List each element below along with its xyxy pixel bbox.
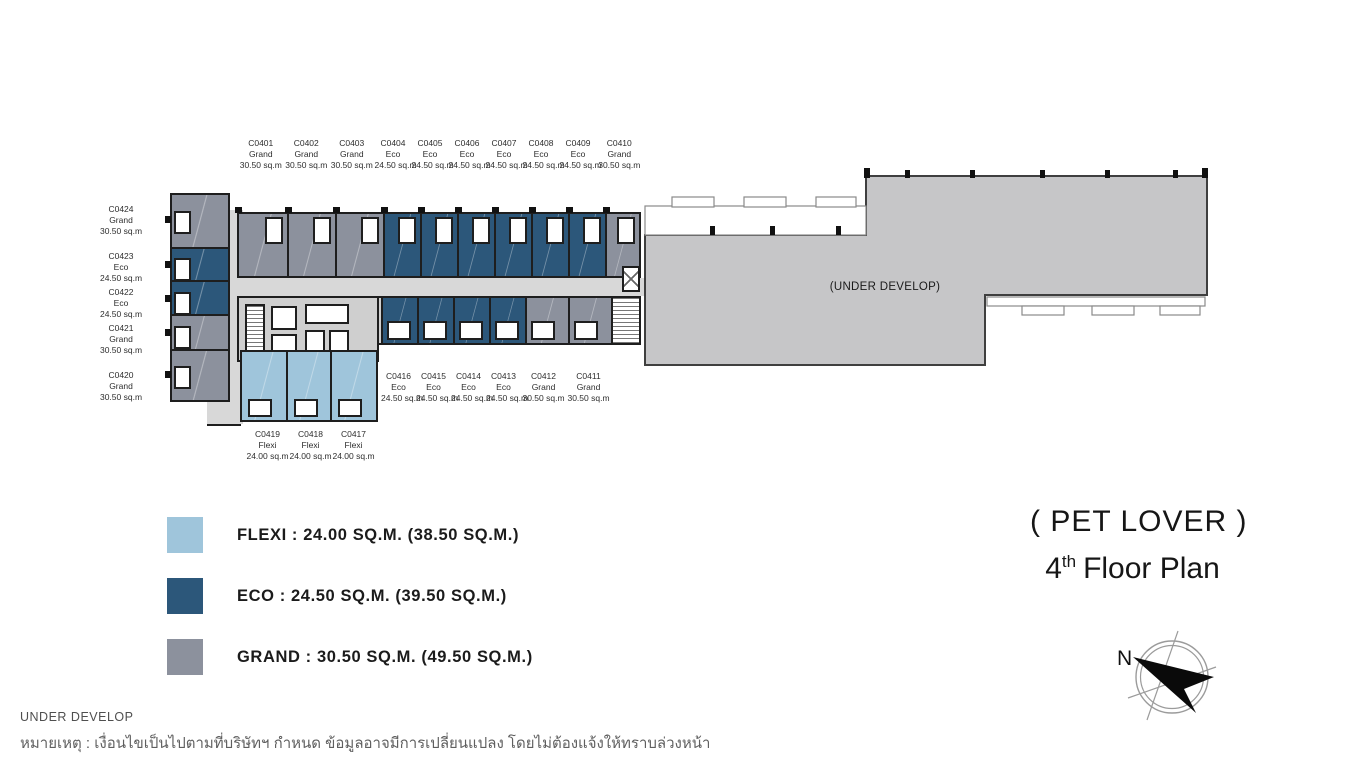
unit-code: C0403	[329, 138, 375, 149]
unit-label: C0404 Eco 24.50 sq.m	[375, 138, 412, 171]
unit-size: 24.50 sq.m	[375, 160, 412, 171]
unit-label: C0414 Eco 24.50 sq.m	[451, 371, 486, 404]
unit-label: C0408 Eco 24.50 sq.m	[523, 138, 560, 171]
unit-type: Grand	[86, 381, 156, 392]
unit-type: Grand	[238, 149, 284, 160]
unit-label: C0423 Eco 24.50 sq.m	[86, 251, 156, 287]
unit-block-flexi	[330, 352, 376, 420]
unit-code: C0420	[86, 370, 156, 381]
footer-under-develop: UNDER DEVELOP	[20, 710, 133, 724]
unit-code: C0418	[289, 429, 332, 440]
unit-label: C0413 Eco 24.50 sq.m	[486, 371, 521, 404]
unit-type: Flexi	[289, 440, 332, 451]
unit-type: Grand	[86, 215, 156, 226]
unit-size: 30.50 sq.m	[238, 160, 284, 171]
unit-type: Eco	[486, 382, 521, 393]
unit-block-flexi	[286, 352, 330, 420]
legend-swatch	[167, 578, 203, 614]
unit-block-eco	[383, 214, 420, 276]
unit-type: Eco	[449, 149, 486, 160]
unit-type: Eco	[523, 149, 560, 160]
wing-top-row	[237, 212, 641, 278]
unit-block-eco	[489, 298, 525, 343]
unit-block-eco	[417, 298, 453, 343]
unit-size: 24.50 sq.m	[486, 393, 521, 404]
unit-code: C0421	[86, 323, 156, 334]
unit-block-eco	[420, 214, 457, 276]
unit-code: C0417	[332, 429, 375, 440]
unit-code: C0406	[449, 138, 486, 149]
unit-block-grand	[568, 298, 611, 343]
unit-size: 30.50 sq.m	[566, 393, 611, 404]
unit-code: C0415	[416, 371, 451, 382]
compass-north-label: N	[1117, 647, 1132, 670]
floor-ordinal: th	[1062, 552, 1076, 571]
unit-block-eco	[453, 298, 489, 343]
unit-block-grand	[172, 349, 228, 400]
unit-type: Grand	[597, 149, 643, 160]
unit-code: C0412	[521, 371, 566, 382]
unit-block-grand	[287, 214, 335, 276]
wing-flexi	[240, 350, 378, 422]
unit-type: Grand	[521, 382, 566, 393]
footer-note-thai: หมายเหตุ : เงื่อนไขเป็นไปตามที่บริษัทฯ ก…	[20, 731, 710, 755]
unit-label: C0417 Flexi 24.00 sq.m	[332, 429, 375, 462]
legend-row: ECO : 24.50 SQ.M. (39.50 SQ.M.)	[167, 578, 533, 614]
unit-size: 24.50 sq.m	[523, 160, 560, 171]
unit-code: C0407	[486, 138, 523, 149]
unit-label: C0419 Flexi 24.00 sq.m	[246, 429, 289, 462]
unit-label: C0409 Eco 24.50 sq.m	[560, 138, 597, 171]
unit-block-flexi	[242, 352, 286, 420]
unit-label: C0418 Flexi 24.00 sq.m	[289, 429, 332, 462]
unit-label: C0411 Grand 30.50 sq.m	[566, 371, 611, 404]
unit-size: 24.50 sq.m	[416, 393, 451, 404]
unit-type: Eco	[486, 149, 523, 160]
unit-size: 30.50 sq.m	[284, 160, 330, 171]
unit-size: 24.50 sq.m	[449, 160, 486, 171]
unit-type: Grand	[329, 149, 375, 160]
unit-size: 24.50 sq.m	[412, 160, 449, 171]
unit-code: C0422	[86, 287, 156, 298]
unit-code: C0404	[375, 138, 412, 149]
unit-label: C0401 Grand 30.50 sq.m	[238, 138, 284, 171]
unit-labels-top: C0401 Grand 30.50 sq.m C0402 Grand 30.50…	[238, 138, 642, 171]
unit-size: 24.50 sq.m	[560, 160, 597, 171]
service-room	[305, 304, 349, 324]
legend-label: FLEXI : 24.00 SQ.M. (38.50 SQ.M.)	[237, 526, 519, 545]
unit-type: Grand	[566, 382, 611, 393]
unit-label: C0402 Grand 30.50 sq.m	[284, 138, 330, 171]
unit-block-grand	[172, 195, 228, 247]
unit-size: 30.50 sq.m	[597, 160, 643, 171]
unit-block-grand	[239, 214, 287, 276]
floor-title: 4thFloor Plan	[1030, 552, 1235, 586]
unit-code: C0405	[412, 138, 449, 149]
unit-label: C0421 Grand 30.50 sq.m	[86, 323, 156, 370]
unit-size: 30.50 sq.m	[86, 392, 156, 403]
unit-labels-left: C0424 Grand 30.50 sq.m C0423 Eco 24.50 s…	[86, 204, 156, 417]
unit-label: C0407 Eco 24.50 sq.m	[486, 138, 523, 171]
compass-icon: N	[1112, 625, 1227, 725]
unit-block-grand	[335, 214, 383, 276]
unit-size: 24.00 sq.m	[289, 451, 332, 462]
unit-code: C0408	[523, 138, 560, 149]
unit-block-eco	[457, 214, 494, 276]
wing-left	[170, 193, 230, 402]
unit-code: C0410	[597, 138, 643, 149]
unit-code: C0401	[238, 138, 284, 149]
unit-block-eco	[531, 214, 568, 276]
unit-type: Eco	[560, 149, 597, 160]
unit-size: 24.50 sq.m	[86, 273, 156, 284]
unit-code: C0411	[566, 371, 611, 382]
unit-label: C0422 Eco 24.50 sq.m	[86, 287, 156, 323]
unit-type: Eco	[375, 149, 412, 160]
unit-type: Eco	[86, 262, 156, 273]
floor-plan-page: C0401 Grand 30.50 sq.m C0402 Grand 30.50…	[0, 0, 1366, 768]
unit-block-eco	[568, 214, 605, 276]
unit-size: 24.50 sq.m	[381, 393, 416, 404]
floor-text: Floor Plan	[1083, 552, 1220, 585]
unit-type: Eco	[86, 298, 156, 309]
unit-label: C0412 Grand 30.50 sq.m	[521, 371, 566, 404]
unit-block-grand	[525, 298, 568, 343]
unit-code: C0423	[86, 251, 156, 262]
shaft-box	[622, 266, 640, 292]
stairwell-east	[611, 298, 639, 343]
unit-size: 30.50 sq.m	[521, 393, 566, 404]
unit-size: 30.50 sq.m	[86, 345, 156, 356]
unit-type: Flexi	[332, 440, 375, 451]
unit-label: C0424 Grand 30.50 sq.m	[86, 204, 156, 251]
unit-label: C0406 Eco 24.50 sq.m	[449, 138, 486, 171]
legend-label: ECO : 24.50 SQ.M. (39.50 SQ.M.)	[237, 587, 507, 606]
unit-code: C0402	[284, 138, 330, 149]
unit-label: C0405 Eco 24.50 sq.m	[412, 138, 449, 171]
elevator	[271, 306, 297, 330]
unit-size: 24.00 sq.m	[246, 451, 289, 462]
unit-type: Eco	[451, 382, 486, 393]
unit-block-eco	[172, 280, 228, 314]
unit-labels-bottom: C0416 Eco 24.50 sq.m C0415 Eco 24.50 sq.…	[381, 371, 611, 404]
unit-label: C0403 Grand 30.50 sq.m	[329, 138, 375, 171]
unit-label: C0410 Grand 30.50 sq.m	[597, 138, 643, 171]
unit-code: C0416	[381, 371, 416, 382]
unit-type: Eco	[412, 149, 449, 160]
unit-type: Grand	[284, 149, 330, 160]
legend-row: FLEXI : 24.00 SQ.M. (38.50 SQ.M.)	[167, 517, 533, 553]
stairwell-core	[245, 304, 265, 354]
unit-type: Grand	[86, 334, 156, 345]
unit-size: 30.50 sq.m	[86, 226, 156, 237]
unit-block-eco	[172, 247, 228, 280]
legend-row: GRAND : 30.50 SQ.M. (49.50 SQ.M.)	[167, 639, 533, 675]
unit-labels-flexi: C0419 Flexi 24.00 sq.m C0418 Flexi 24.00…	[246, 429, 375, 462]
unit-block-grand	[172, 314, 228, 349]
unit-type: Eco	[381, 382, 416, 393]
legend-swatch	[167, 517, 203, 553]
floor-number: 4	[1045, 552, 1062, 585]
under-develop-label: (UNDER DEVELOP)	[790, 281, 980, 293]
corridor-stub	[207, 400, 241, 426]
unit-code: C0419	[246, 429, 289, 440]
unit-size: 24.50 sq.m	[86, 309, 156, 320]
under-develop-area	[640, 168, 1215, 373]
unit-size: 24.00 sq.m	[332, 451, 375, 462]
unit-block-eco	[494, 214, 531, 276]
unit-label: C0415 Eco 24.50 sq.m	[416, 371, 451, 404]
unit-label: C0420 Grand 30.50 sq.m	[86, 370, 156, 417]
unit-code: C0424	[86, 204, 156, 215]
unit-type: Eco	[416, 382, 451, 393]
unit-size: 24.50 sq.m	[486, 160, 523, 171]
plan-titles: ( PET LOVER ) 4thFloor Plan	[1030, 505, 1235, 586]
corridor-main	[232, 278, 644, 296]
unit-size: 24.50 sq.m	[451, 393, 486, 404]
under-develop-polygon	[645, 176, 1207, 365]
unit-type: Flexi	[246, 440, 289, 451]
unit-block-eco	[381, 298, 417, 343]
unit-code: C0414	[451, 371, 486, 382]
unit-code: C0409	[560, 138, 597, 149]
legend: FLEXI : 24.00 SQ.M. (38.50 SQ.M.) ECO : …	[167, 517, 533, 700]
unit-label: C0416 Eco 24.50 sq.m	[381, 371, 416, 404]
unit-code: C0413	[486, 371, 521, 382]
legend-swatch	[167, 639, 203, 675]
legend-label: GRAND : 30.50 SQ.M. (49.50 SQ.M.)	[237, 648, 533, 667]
unit-size: 30.50 sq.m	[329, 160, 375, 171]
zone-title: ( PET LOVER )	[1030, 505, 1235, 539]
